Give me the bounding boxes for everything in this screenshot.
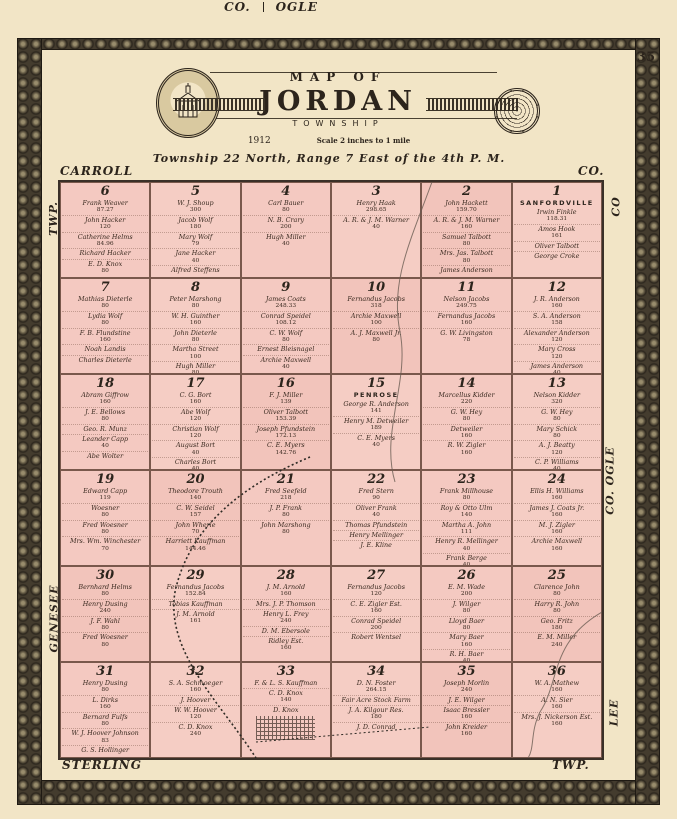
- owner-label: Fred Woesner80: [62, 520, 148, 536]
- owner-label: Joseph Morlin240: [423, 679, 509, 694]
- ornamental-border-bottom: [17, 780, 660, 805]
- section-number: 17: [152, 377, 238, 390]
- owner-label: Henry Haak298.65: [333, 199, 419, 214]
- owner-label: J. M. Arnold160: [243, 583, 329, 598]
- owner-label: S. A. Schmoeger160: [152, 679, 238, 694]
- map-year: 1912: [248, 136, 271, 146]
- owners: James Coats248.33Conrad Speidel108.12C. …: [243, 295, 329, 370]
- map-section: 32 S. A. Schmoeger160J. HooverW. W. Hoov…: [150, 662, 240, 758]
- section-number: 13: [514, 377, 600, 390]
- owners: Henry Dusing80L. Dirks160Bernard Fulfs80…: [62, 679, 148, 754]
- map-section: 31 Henry Dusing80L. Dirks160Bernard Fulf…: [60, 662, 150, 758]
- owners: J. R. Anderson160S. A. Anderson158Alexan…: [514, 295, 600, 374]
- owner-label: J. E. Wilger: [423, 695, 509, 704]
- owner-label: W. W. Hoover120: [152, 705, 238, 721]
- map-section: 23 Frank Millhouse80Roy & Otto Ulm140Mar…: [421, 470, 511, 566]
- map-section: 10 Fernandus Jacobs318Archie Maxwell100A…: [331, 278, 421, 374]
- owner-label: Frank Millhouse80: [423, 487, 509, 502]
- owner-label: M. J. Zigler160: [514, 520, 600, 536]
- owner-label: W. J. Shoup300: [152, 199, 238, 214]
- owners: Abram Giffrow160J. E. Bellows80Geo. R. M…: [62, 391, 148, 460]
- owner-label: Fernandus Jacobs152.84: [152, 583, 238, 598]
- owner-label: James J. Coats Jr.160: [514, 503, 600, 519]
- map-section: 30 Bernhard Helms80Henry Dusing240J. F. …: [60, 566, 150, 662]
- county-line-tick: [263, 2, 264, 12]
- owner-label: Conrad Speidel200: [333, 616, 419, 632]
- section-grid: 6 Frank Weaver87.27John Hacker120Catheri…: [60, 182, 602, 758]
- section-number: 36: [514, 665, 600, 678]
- owner-label: Frank Berge40: [423, 553, 509, 566]
- owner-label: Harriett Kauffman144.46: [152, 536, 238, 552]
- place-label: SANFORDVILLE: [514, 199, 600, 207]
- owners: Peter Marshong80W. H. Guinther160John Di…: [152, 295, 238, 374]
- owner-label: Tobias Kauffman: [152, 599, 238, 608]
- owner-label: A. J. Maxwell Jr.80: [333, 328, 419, 344]
- map-section: 7 Mathias Dieterle80Lydia Wolf80F. B. Fl…: [60, 278, 150, 374]
- section-number: 18: [62, 377, 148, 390]
- section-number: 1: [514, 185, 600, 198]
- owners: John Hackett159.70A. R. & J. M. Warner16…: [423, 199, 509, 274]
- owners: Edward Capp119Woesner80Fred Woesner80Mrs…: [62, 487, 148, 552]
- owner-label: Fernandus Jacobs160: [423, 311, 509, 327]
- owner-label: Richard Hacker: [62, 248, 148, 257]
- owners: E. M. Wade200J. Wilger80Lloyd Baer80Mary…: [423, 583, 509, 662]
- map-section: 21 Fred Seefeld218J. P. Frank80John Mars…: [241, 470, 331, 566]
- owner-label: Abram Giffrow160: [62, 391, 148, 406]
- owner-label: Henry Mellinger: [333, 530, 419, 539]
- owner-label: John Wherle70: [152, 520, 238, 536]
- owner-label: Fred Stern90: [333, 487, 419, 502]
- map-section: 3 Henry Haak298.65A. R. & J. M. Warner40: [331, 182, 421, 278]
- owner-label: J. Wilger80: [423, 599, 509, 615]
- section-number: 15: [333, 377, 419, 390]
- owner-label: Carl Bauer80: [243, 199, 329, 214]
- owner-label: D. M. Ebersole: [243, 626, 329, 635]
- section-number: 5: [152, 185, 238, 198]
- section-number: 10: [333, 281, 419, 294]
- owner-label: Henry M. Detweiler189: [333, 416, 419, 432]
- owner-label: D. Knox: [243, 705, 329, 714]
- owner-label: C. D. Knox240: [152, 722, 238, 738]
- owner-label: C. E. Myers142.76: [243, 440, 329, 456]
- owner-label: Nelson Kidder320: [514, 391, 600, 406]
- map-section: 28 J. M. Arnold160Mrs. J. P. ThomsonHenr…: [241, 566, 331, 662]
- owners: C. G. Bort160Abe Wolf120Christian Wolf12…: [152, 391, 238, 470]
- owners: Mathias Dieterle80Lydia Wolf80F. B. Flun…: [62, 295, 148, 364]
- map-section: 20 Theodore Trouth140C. W. Seidel157John…: [150, 470, 240, 566]
- owner-label: Mrs. J. P. Thomson: [243, 599, 329, 608]
- section-number: 14: [423, 377, 509, 390]
- owners: Nelson Kidder320G. W. Hey80Mary Schick80…: [514, 391, 600, 470]
- owners: George R. Anderson141Henry M. Detweiler1…: [333, 400, 419, 448]
- owner-label: Samuel Talbott80: [423, 232, 509, 248]
- ornamental-border-left: [17, 38, 42, 805]
- section-number: 6: [62, 185, 148, 198]
- section-number: 24: [514, 473, 600, 486]
- owner-label: Mathias Dieterle80: [62, 295, 148, 310]
- map-section: 36 W. A. Mathew160A. N. Sier160Mrs. J. N…: [512, 662, 602, 758]
- map-section: 1 SANFORDVILLE Irwin Finkle118.31Amos Ho…: [512, 182, 602, 278]
- owner-label: Roy & Otto Ulm140: [423, 503, 509, 519]
- owner-label: Lloyd Baer80: [423, 616, 509, 632]
- map-section: 25 Clarence John80Harry R. John80Geo. Fr…: [512, 566, 602, 662]
- owner-label: Geo. Fritz180: [514, 616, 600, 632]
- map-section: 17 C. G. Bort160Abe Wolf120Christian Wol…: [150, 374, 240, 470]
- owner-label: J. D. Conrad: [333, 722, 419, 731]
- map-section: 2 John Hackett159.70A. R. & J. M. Warner…: [421, 182, 511, 278]
- owner-label: Henry Dusing80: [62, 679, 148, 694]
- section-number: 33: [243, 665, 329, 678]
- owner-label: W. A. Mathew160: [514, 679, 600, 694]
- owner-label: Harry R. John80: [514, 599, 600, 615]
- map-section: 26 E. M. Wade200J. Wilger80Lloyd Baer80M…: [421, 566, 511, 662]
- owners: Nelson Jacobs249.75Fernandus Jacobs160G.…: [423, 295, 509, 343]
- margin-label-co: CO.: [224, 0, 250, 14]
- section-number: 31: [62, 665, 148, 678]
- section-number: 8: [152, 281, 238, 294]
- owner-label: Alfred Steffens: [152, 265, 238, 274]
- owner-label: Fred Woesner80: [62, 632, 148, 648]
- owner-label: F. & L. S. Kauffman: [243, 679, 329, 687]
- owner-label: J. E. Bellows80: [62, 407, 148, 423]
- section-number: 26: [423, 569, 509, 582]
- title-block: MAP OF JORDAN TOWNSHIP: [118, 58, 558, 128]
- section-number: 22: [333, 473, 419, 486]
- owner-label: A. R. & J. M. Warner40: [333, 215, 419, 231]
- owners: Irwin Finkle118.31Amos Hook161Oliver Tal…: [514, 208, 600, 260]
- owner-label: Fair Acre Stock Farm: [333, 695, 419, 704]
- owner-label: Ridley Est.160: [243, 636, 329, 652]
- map-section: 4 Carl Bauer80N. B. Crary200Hugh Miller4…: [241, 182, 331, 278]
- owner-label: Detweiler160: [423, 424, 509, 440]
- owner-label: Bernard Fulfs80: [62, 712, 148, 728]
- owner-label: Joseph Pfundstein172.13: [243, 424, 329, 440]
- owner-label: C. P. Williams40: [514, 457, 600, 470]
- section-number: 2: [423, 185, 509, 198]
- section-number: 32: [152, 665, 238, 678]
- owner-label: Mary Wolf79: [152, 232, 238, 248]
- owner-label: Abe Wolf120: [152, 407, 238, 423]
- owner-label: F. J. Miller139: [243, 391, 329, 406]
- owner-label: Mrs. J. Nickerson Est.160: [514, 712, 600, 728]
- owner-label: Mary Schick80: [514, 424, 600, 440]
- map-scale: Scale 2 inches to 1 mile: [317, 136, 410, 146]
- owners: Bernhard Helms80Henry Dusing240J. F. Wah…: [62, 583, 148, 648]
- owner-label: Amos Hook161: [514, 224, 600, 240]
- owner-label: John Hackett159.70: [423, 199, 509, 214]
- owner-label: E. M. Wade200: [423, 583, 509, 598]
- ornamental-border-top: [17, 38, 660, 50]
- section-number: 28: [243, 569, 329, 582]
- section-number: 4: [243, 185, 329, 198]
- map-section: 27 Fernandus Jacobs120C. E. Zigler Est.1…: [331, 566, 421, 662]
- owner-label: Nelson Jacobs249.75: [423, 295, 509, 310]
- owner-label: Thomas Pfundstein: [333, 520, 419, 529]
- owner-label: James Coats248.33: [243, 295, 329, 310]
- owner-label: Jacob Wolf180: [152, 215, 238, 231]
- map-section: 8 Peter Marshong80W. H. Guinther160John …: [150, 278, 240, 374]
- map-section: 33 F. & L. S. KauffmanC. D. Knox140D. Kn…: [241, 662, 331, 758]
- owners: S. A. Schmoeger160J. HooverW. W. Hoover1…: [152, 679, 238, 738]
- owner-label: Alexander Anderson120: [514, 328, 600, 344]
- owner-label: Marcellus Kidder220: [423, 391, 509, 406]
- owner-label: Noah Landis: [62, 344, 148, 353]
- owner-label: Henry Dusing240: [62, 599, 148, 615]
- owner-label: J. M. Arnold161: [152, 609, 238, 625]
- owners: W. J. Shoup300Jacob Wolf180Mary Wolf79Ja…: [152, 199, 238, 274]
- map-section: 24 Ellis H. Williams160James J. Coats Jr…: [512, 470, 602, 566]
- owner-label: E. D. Knox80: [62, 259, 148, 275]
- owner-label: Oliver Frank40: [333, 503, 419, 519]
- owner-label: Fred Seefeld218: [243, 487, 329, 502]
- owner-label: G. W. Hey80: [514, 407, 600, 423]
- margin-label-lee: LEE: [607, 699, 620, 727]
- section-number: 11: [423, 281, 509, 294]
- owners: J. M. Arnold160Mrs. J. P. ThomsonHenry L…: [243, 583, 329, 652]
- section-number: 35: [423, 665, 509, 678]
- owners: Fred Stern90Oliver Frank40Thomas Pfundst…: [333, 487, 419, 549]
- owner-label: George R. Anderson141: [333, 400, 419, 415]
- owner-label: Fernandus Jacobs120: [333, 583, 419, 598]
- owner-label: A. J. Beatty120: [514, 440, 600, 456]
- owner-label: Christian Wolf120: [152, 424, 238, 440]
- map-section: 5 W. J. Shoup300Jacob Wolf180Mary Wolf79…: [150, 182, 240, 278]
- owners: Frank Weaver87.27John Hacker120Catherine…: [62, 199, 148, 274]
- owner-label: Mary Cross120: [514, 344, 600, 360]
- owner-label: R. W. Zigler160: [423, 440, 509, 456]
- owner-label: J. F. Wahl80: [62, 616, 148, 632]
- owner-label: Hugh Miller40: [243, 232, 329, 248]
- section-number: 20: [152, 473, 238, 486]
- owner-label: Oliver Talbott: [514, 241, 600, 250]
- owner-label: Isaac Bressler160: [423, 705, 509, 721]
- owner-label: C. W. Wolf80: [243, 328, 329, 344]
- owner-label: Clarence John80: [514, 583, 600, 598]
- margin-label-co-ogle-right: CO. OGLE: [604, 446, 617, 514]
- map-section: 15 PENROSE George R. Anderson141Henry M.…: [331, 374, 421, 470]
- owner-label: C. W. Seidel157: [152, 503, 238, 519]
- owner-label: N. B. Crary200: [243, 215, 329, 231]
- owner-label: W. J. Hoover Johnson83: [62, 728, 148, 744]
- map-section: 18 Abram Giffrow160J. E. Bellows80Geo. R…: [60, 374, 150, 470]
- owner-label: L. Dirks160: [62, 695, 148, 711]
- map-section: 16 F. J. Miller139Oliver Talbott153.39Jo…: [241, 374, 331, 470]
- margin-label-twp-bottom: TWP.: [552, 758, 590, 772]
- owner-label: Ernest Bleisnagel: [243, 344, 329, 353]
- owner-label: F. B. Flundstine160: [62, 328, 148, 344]
- owners: Fernandus Jacobs120C. E. Zigler Est.160C…: [333, 583, 419, 642]
- map-section: 13 Nelson Kidder320G. W. Hey80Mary Schic…: [512, 374, 602, 470]
- owner-label: C. E. Myers40: [333, 433, 419, 449]
- engraving-bar: [173, 98, 265, 111]
- owners: Marcellus Kidder220G. W. Hey80Detweiler1…: [423, 391, 509, 456]
- owner-label: Leander Capp40: [62, 434, 148, 450]
- owner-label: Mary Baer160: [423, 632, 509, 648]
- owner-label: Mrs. Wm. Winchester70: [62, 536, 148, 552]
- township-range-line: Township 22 North, Range 7 East of the 4…: [58, 152, 600, 165]
- owner-label: S. A. Anderson158: [514, 311, 600, 327]
- section-number: 27: [333, 569, 419, 582]
- section-number: 21: [243, 473, 329, 486]
- owner-label: A. R. & J. M. Warner160: [423, 215, 509, 231]
- owner-label: Hugh Miller80: [152, 361, 238, 374]
- owners: Frank Millhouse80Roy & Otto Ulm140Martha…: [423, 487, 509, 566]
- owner-label: Theodore Trouth140: [152, 487, 238, 502]
- section-number: 19: [62, 473, 148, 486]
- owner-label: August Bort40: [152, 440, 238, 456]
- owners: Joseph Morlin240J. E. WilgerIsaac Bressl…: [423, 679, 509, 738]
- owner-label: Edward Capp119: [62, 487, 148, 502]
- owners: W. A. Mathew160A. N. Sier160Mrs. J. Nick…: [514, 679, 600, 727]
- owner-label: J. P. Frank80: [243, 503, 329, 519]
- owner-label: J. A. Kilgour Res.180: [333, 705, 419, 721]
- place-label: PENROSE: [333, 391, 419, 399]
- map-section: 35 Joseph Morlin240J. E. WilgerIsaac Bre…: [421, 662, 511, 758]
- owner-label: John Hacker120: [62, 215, 148, 231]
- owner-label: Bernhard Helms80: [62, 583, 148, 598]
- section-number: 3: [333, 185, 419, 198]
- owner-label: Charles Bort40: [152, 457, 238, 470]
- owner-label: J. Hoover: [152, 695, 238, 704]
- map-section: 11 Nelson Jacobs249.75Fernandus Jacobs16…: [421, 278, 511, 374]
- owner-label: Conrad Speidel108.12: [243, 311, 329, 327]
- map-section: 29 Fernandus Jacobs152.84Tobias Kauffman…: [150, 566, 240, 662]
- owner-label: Peter Marshong80: [152, 295, 238, 310]
- owner-label: R. H. Baer40: [423, 649, 509, 662]
- owner-label: Archie Maxwell40: [243, 355, 329, 371]
- owners: Ellis H. Williams160James J. Coats Jr.16…: [514, 487, 600, 552]
- owner-label: Woesner80: [62, 503, 148, 519]
- owner-label: J. E. Kline: [333, 540, 419, 549]
- owner-label: Archie Maxwell100: [333, 311, 419, 327]
- owner-label: John Kreider160: [423, 722, 509, 738]
- owners: Carl Bauer80N. B. Crary200Hugh Miller40: [243, 199, 329, 247]
- section-number: 34: [333, 665, 419, 678]
- map-section: 14 Marcellus Kidder220G. W. Hey80Detweil…: [421, 374, 511, 470]
- owner-label: G. W. Livingston78: [423, 328, 509, 344]
- owner-label: G. W. Hey80: [423, 407, 509, 423]
- section-number: 16: [243, 377, 329, 390]
- owner-label: Mrs. Jas. Talbott80: [423, 248, 509, 264]
- owner-label: Frank Weaver87.27: [62, 199, 148, 214]
- section-number: 7: [62, 281, 148, 294]
- margin-label-carroll: CARROLL: [60, 164, 133, 178]
- owner-label: Martha Street100: [152, 344, 238, 360]
- margin-label-sterling: STERLING: [62, 758, 142, 772]
- owner-label: Martha A. John111: [423, 520, 509, 536]
- owners: Fernandus Jacobs318Archie Maxwell100A. J…: [333, 295, 419, 343]
- owner-label: Irwin Finkle118.31: [514, 208, 600, 223]
- owner-label: W. H. Guinther160: [152, 311, 238, 327]
- owner-label: Abe Wolter: [62, 451, 148, 460]
- owner-label: C. G. Bort160: [152, 391, 238, 406]
- owners: F. & L. S. KauffmanC. D. Knox140D. Knox: [243, 679, 329, 740]
- owner-label: J. R. Anderson160: [514, 295, 600, 310]
- owners: F. J. Miller139Oliver Talbott153.39Josep…: [243, 391, 329, 456]
- owner-label: D. N. Foster264.15: [333, 679, 419, 694]
- owner-label: Fernandus Jacobs318: [333, 295, 419, 310]
- map-section: 34 D. N. Foster264.15Fair Acre Stock Far…: [331, 662, 421, 758]
- section-number: 23: [423, 473, 509, 486]
- owner-label: G. S. Hollinger: [62, 745, 148, 754]
- owner-label: Charles Dieterle: [62, 355, 148, 364]
- section-number: 12: [514, 281, 600, 294]
- owners: Clarence John80Harry R. John80Geo. Fritz…: [514, 583, 600, 648]
- owner-label: Henry R. Mellinger40: [423, 536, 509, 552]
- owner-label: Lydia Wolf80: [62, 311, 148, 327]
- section-number: 25: [514, 569, 600, 582]
- owner-label: George Croke: [514, 251, 600, 260]
- ornamental-border-right: [635, 38, 660, 805]
- owners: Henry Haak298.65A. R. & J. M. Warner40: [333, 199, 419, 231]
- owner-label: Robert Wentsel: [333, 632, 419, 641]
- owner-label: James Anderson40: [514, 361, 600, 374]
- owner-label: Henry L. Frey240: [243, 609, 329, 625]
- owner-label: E. M. Miller240: [514, 632, 600, 648]
- owner-label: A. N. Sier160: [514, 695, 600, 711]
- map-section: 12 J. R. Anderson160S. A. Anderson158Ale…: [512, 278, 602, 374]
- owners: Theodore Trouth140C. W. Seidel157John Wh…: [152, 487, 238, 552]
- section-number: 30: [62, 569, 148, 582]
- owners: Fernandus Jacobs152.84Tobias KauffmanJ. …: [152, 583, 238, 625]
- owner-label: James Anderson: [423, 265, 509, 274]
- margin-label-ogle: OGLE: [276, 0, 318, 14]
- map-section: 19 Edward Capp119Woesner80Fred Woesner80…: [60, 470, 150, 566]
- owners: D. N. Foster264.15Fair Acre Stock FarmJ.…: [333, 679, 419, 731]
- owner-label: Geo. R. Munz: [62, 424, 148, 433]
- page-number: 35: [637, 50, 655, 65]
- township-map: 6 Frank Weaver87.27John Hacker120Catheri…: [58, 180, 604, 760]
- owner-label: Jane Hacker40: [152, 248, 238, 264]
- owner-label: C. D. Knox140: [243, 688, 329, 704]
- rosette-vignette-icon: [494, 88, 540, 134]
- margin-label-co-topright: CO.: [578, 164, 604, 178]
- section-number: 29: [152, 569, 238, 582]
- village-plat: [256, 716, 315, 740]
- owner-label: Oliver Talbott153.39: [243, 407, 329, 423]
- margin-label-co-right: CO: [610, 196, 623, 216]
- owner-label: John Marshong80: [243, 520, 329, 536]
- owner-label: John Dieterle80: [152, 328, 238, 344]
- section-number: 9: [243, 281, 329, 294]
- owner-label: C. E. Zigler Est.160: [333, 599, 419, 615]
- owner-label: Catherine Helms84.96: [62, 232, 148, 248]
- map-section: 6 Frank Weaver87.27John Hacker120Catheri…: [60, 182, 150, 278]
- owner-label: Ellis H. Williams160: [514, 487, 600, 502]
- owner-label: Archie Maxwell160: [514, 536, 600, 552]
- map-section: 9 James Coats248.33Conrad Speidel108.12C…: [241, 278, 331, 374]
- atlas-page: 35 MAP OF JORDAN TOWNSHIP 1912 Scale 2 i…: [0, 0, 677, 819]
- map-section: 22 Fred Stern90Oliver Frank40Thomas Pfun…: [331, 470, 421, 566]
- owners: Fred Seefeld218J. P. Frank80John Marshon…: [243, 487, 329, 535]
